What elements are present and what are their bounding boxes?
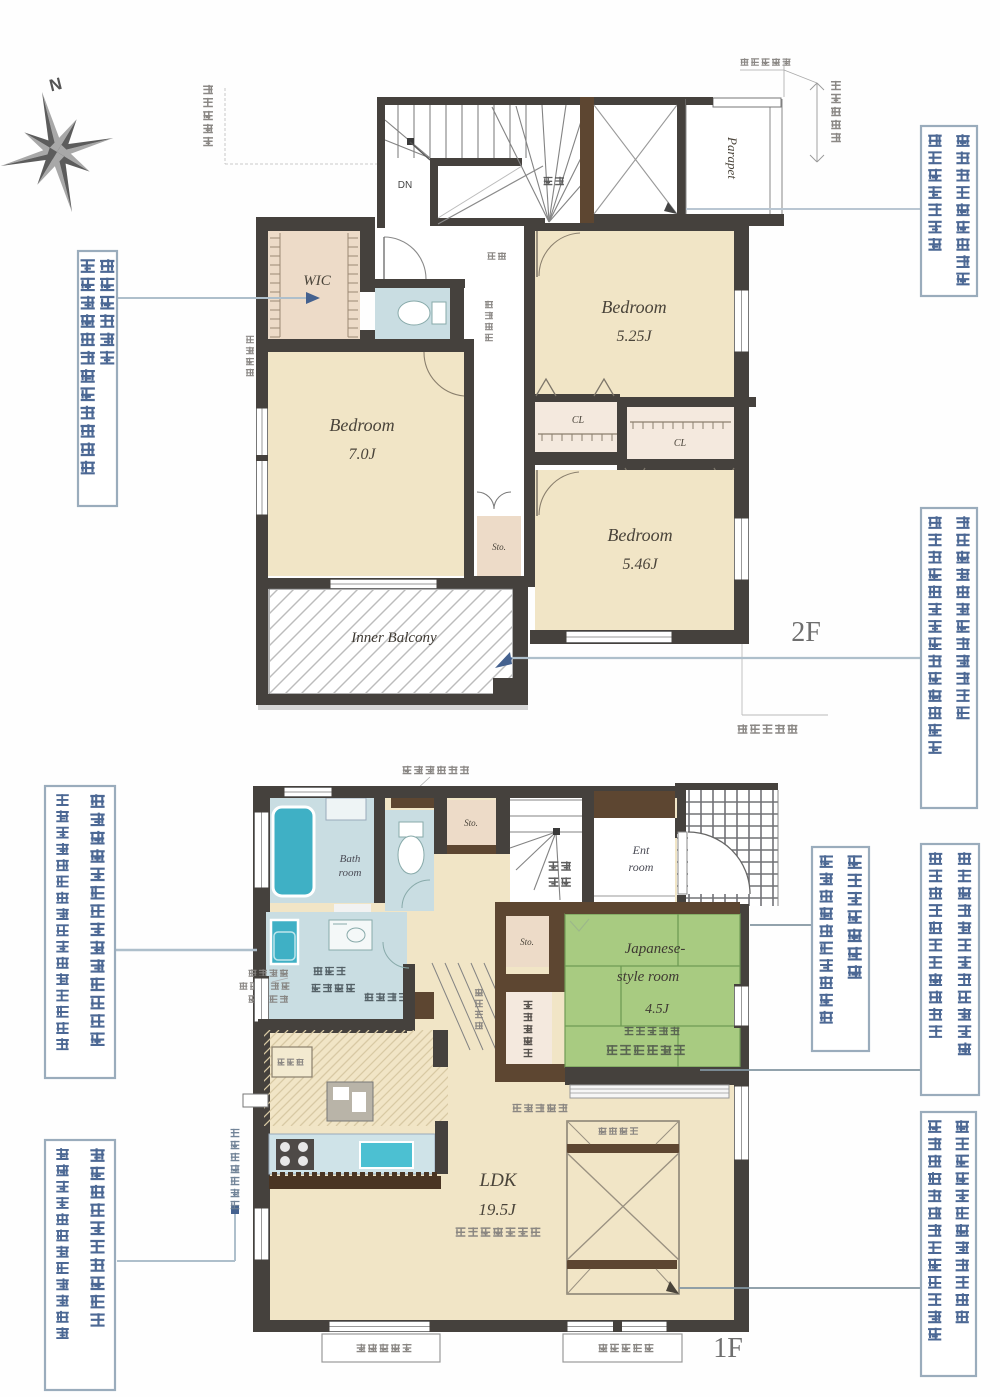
svg-text:CL: CL: [674, 438, 687, 449]
svg-text:Parapet: Parapet: [725, 136, 740, 179]
svg-text:Bath: Bath: [340, 853, 361, 865]
svg-text:style room: style room: [617, 969, 680, 985]
svg-text:19.5J: 19.5J: [478, 1200, 517, 1219]
svg-text:4.5J: 4.5J: [645, 1002, 670, 1017]
svg-text:Sto.: Sto.: [492, 542, 506, 552]
svg-text:2F: 2F: [791, 617, 821, 648]
svg-text:Bedroom: Bedroom: [329, 415, 394, 435]
svg-text:7.0J: 7.0J: [348, 446, 376, 463]
svg-text:WIC: WIC: [303, 273, 331, 289]
svg-text:room: room: [629, 860, 654, 874]
svg-text:LDK: LDK: [479, 1170, 518, 1191]
svg-text:Bedroom: Bedroom: [607, 525, 672, 545]
svg-text:room: room: [339, 867, 362, 879]
svg-text:5.25J: 5.25J: [616, 328, 652, 345]
svg-text:1F: 1F: [713, 1333, 743, 1364]
svg-text:CL: CL: [572, 415, 585, 426]
svg-text:Inner Balcony: Inner Balcony: [350, 630, 437, 646]
svg-text:Bedroom: Bedroom: [601, 297, 666, 317]
svg-text:Sto.: Sto.: [520, 937, 534, 947]
svg-text:Japanese-: Japanese-: [625, 941, 686, 957]
svg-text:Sto.: Sto.: [464, 818, 478, 828]
svg-text:5.46J: 5.46J: [622, 556, 658, 573]
svg-text:DN: DN: [398, 180, 412, 191]
svg-text:Ent: Ent: [632, 843, 650, 857]
